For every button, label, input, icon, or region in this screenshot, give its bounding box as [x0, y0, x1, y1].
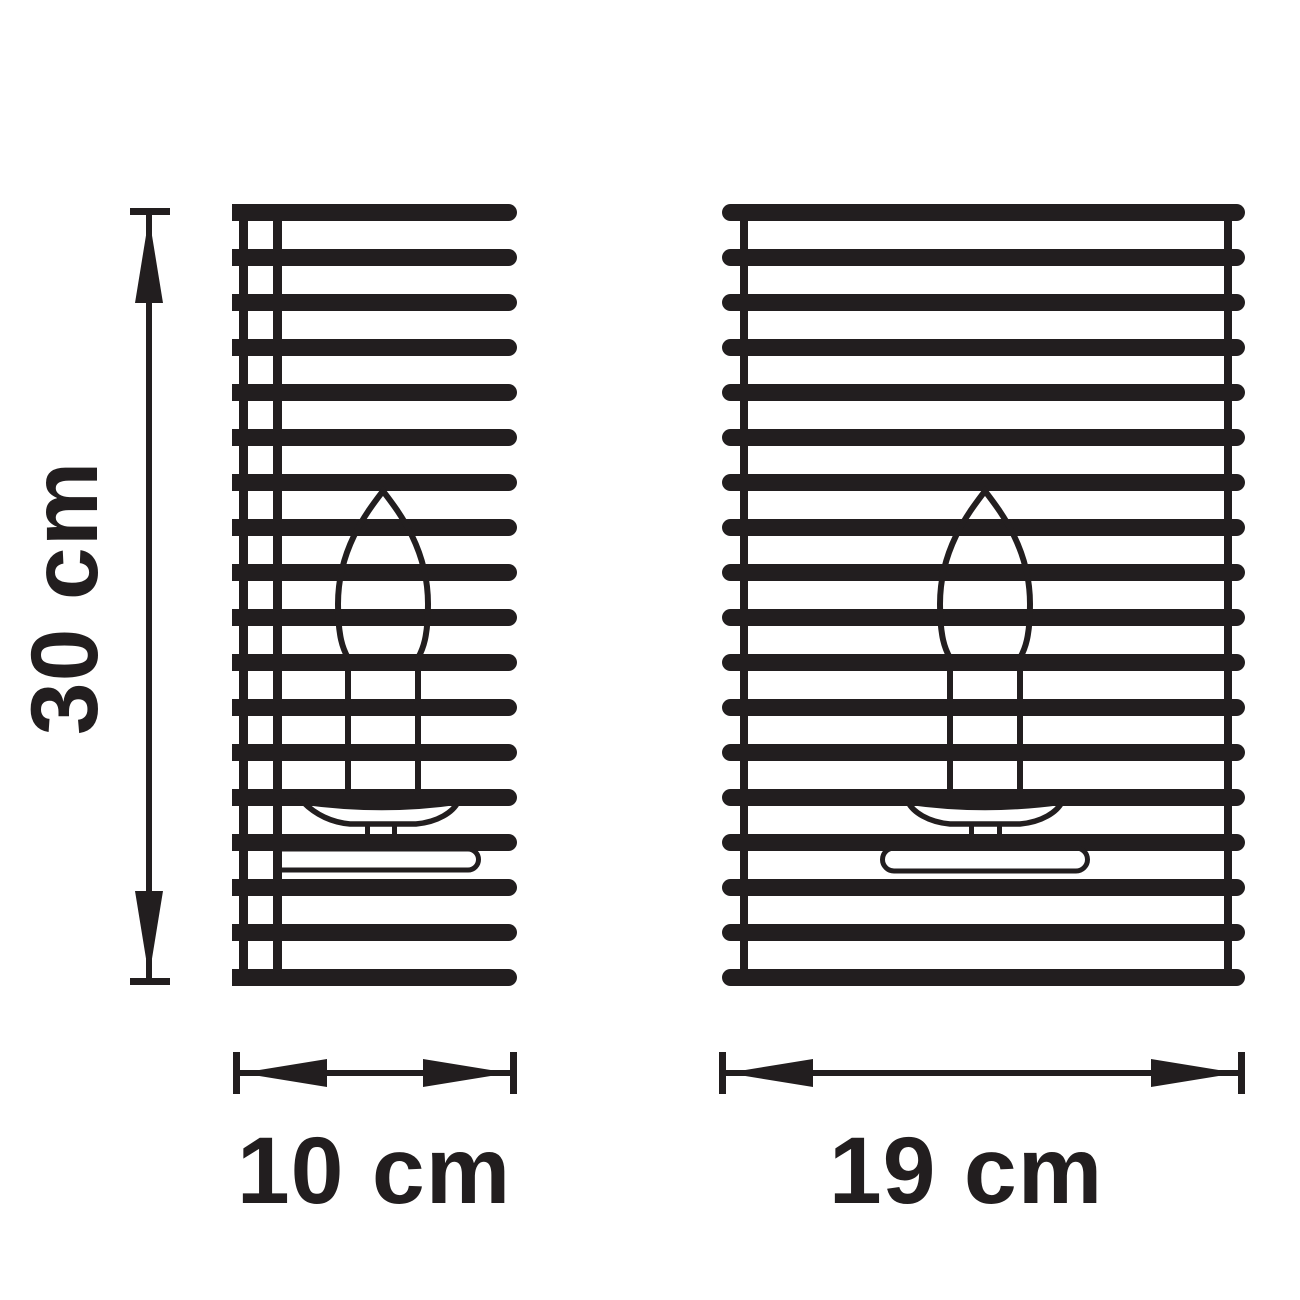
wall-bracket-side: [275, 849, 479, 870]
width-left-start-tick: [233, 1052, 240, 1094]
height-dim-label: 30 cm: [12, 461, 118, 735]
side-frame-rail-outer: [239, 208, 248, 984]
arrow-right-icon: [1151, 1059, 1237, 1087]
width-dimension-front-view: 19 cm: [719, 1052, 1245, 1224]
width-dimension-side-view: 10 cm: [233, 1052, 517, 1224]
arrow-down-icon: [135, 891, 163, 977]
cup-neck-left-line: [365, 824, 370, 837]
arrow-right-icon: [423, 1059, 509, 1087]
arrow-left-icon: [727, 1059, 813, 1087]
width-left-end-tick: [510, 1052, 517, 1094]
candle-tube-left-line-front: [947, 658, 953, 804]
cup-neck-right-line: [392, 824, 397, 837]
wall-bracket-front: [883, 848, 1088, 871]
width-right-label: 19 cm: [829, 1118, 1103, 1224]
candle-tube-left-line: [345, 658, 351, 804]
arrow-up-icon: [135, 217, 163, 303]
cup-neck-right-line-front: [997, 824, 1002, 837]
front-frame-rail-left: [740, 208, 748, 984]
candle-tube-right-line-front: [1017, 658, 1023, 804]
front-view-lamp: [722, 204, 1245, 986]
candle-cup: [303, 802, 458, 824]
front-frame-rail-right: [1224, 208, 1232, 984]
height-dim-line: [146, 212, 152, 982]
height-dimension: 30 cm: [12, 208, 170, 985]
side-view-lamp: [232, 204, 517, 986]
dimension-drawing-canvas: 30 cm 10 cm 19 cm: [0, 0, 1300, 1300]
candle-cup-front: [908, 802, 1062, 824]
dimension-drawing: 30 cm 10 cm 19 cm: [0, 0, 1300, 1300]
width-left-label: 10 cm: [237, 1118, 511, 1224]
candle-tube-right-line: [415, 658, 421, 804]
cup-neck-left-line-front: [969, 824, 974, 837]
width-right-start-tick: [719, 1052, 726, 1094]
arrow-left-icon: [241, 1059, 327, 1087]
width-right-end-tick: [1238, 1052, 1245, 1094]
